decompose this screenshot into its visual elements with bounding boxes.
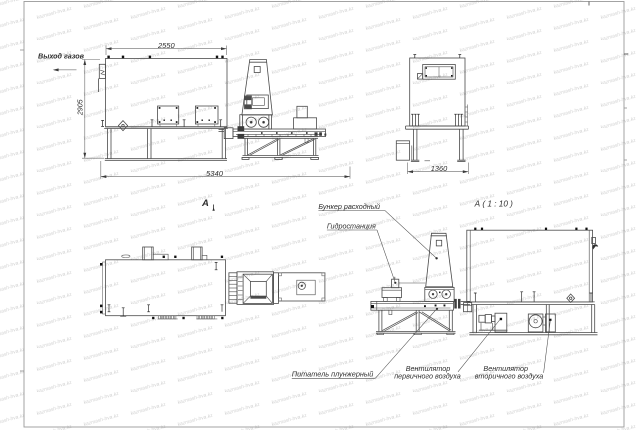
svg-text:А: А (201, 198, 209, 209)
svg-text:5340: 5340 (206, 169, 224, 178)
svg-text:2905: 2905 (77, 99, 84, 116)
svg-text:1360: 1360 (431, 164, 448, 173)
svg-text:2550: 2550 (157, 41, 176, 50)
svg-text:вторичного воздуха: вторичного воздуха (475, 371, 543, 380)
svg-text:Выход газов: Выход газов (38, 52, 85, 61)
svg-text:Питатель плунжерный: Питатель плунжерный (292, 370, 374, 379)
svg-text:А ( 1 : 10 ): А ( 1 : 10 ) (474, 200, 513, 209)
svg-text:Бункер расходный: Бункер расходный (318, 202, 380, 211)
svg-text:первичного воздуха: первичного воздуха (394, 371, 461, 380)
svg-text:Гидростанция: Гидростанция (327, 222, 376, 231)
